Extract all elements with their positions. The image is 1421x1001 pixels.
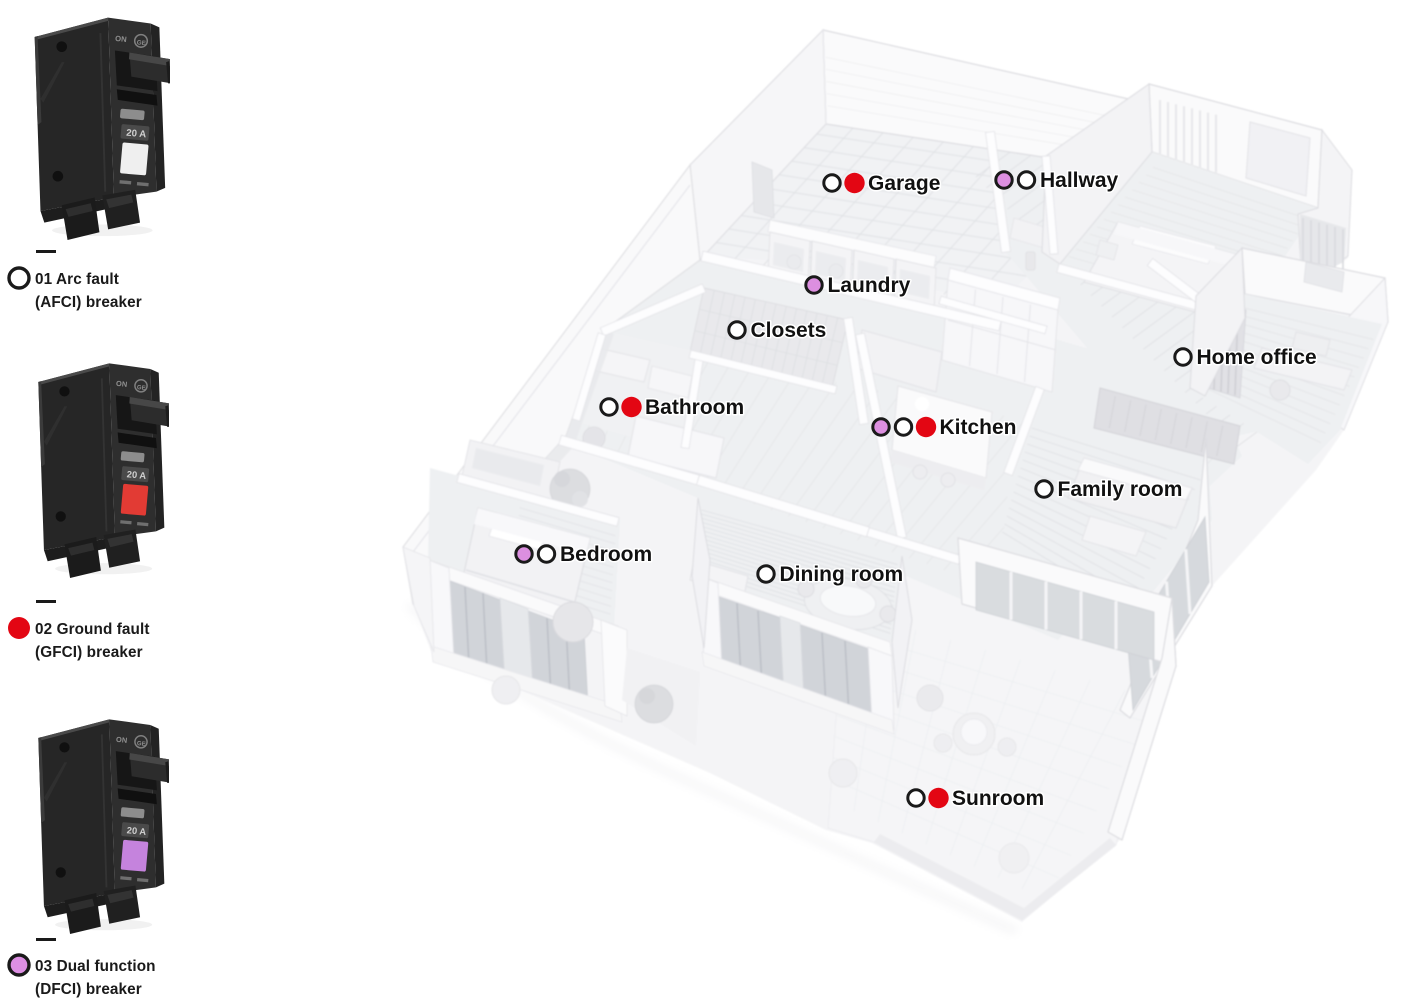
svg-text:Dining room: Dining room — [780, 563, 904, 586]
svg-text:Hallway: Hallway — [1040, 169, 1119, 192]
svg-text:Sunroom: Sunroom — [952, 787, 1044, 810]
svg-text:Bedroom: Bedroom — [560, 543, 652, 566]
svg-text:Family room: Family room — [1058, 478, 1183, 501]
svg-text:Bathroom: Bathroom — [645, 396, 744, 419]
svg-text:Garage: Garage — [868, 172, 940, 195]
svg-text:Closets: Closets — [751, 319, 827, 342]
svg-text:Laundry: Laundry — [828, 274, 911, 297]
svg-text:Kitchen: Kitchen — [940, 416, 1017, 439]
svg-text:Home office: Home office — [1197, 346, 1317, 369]
